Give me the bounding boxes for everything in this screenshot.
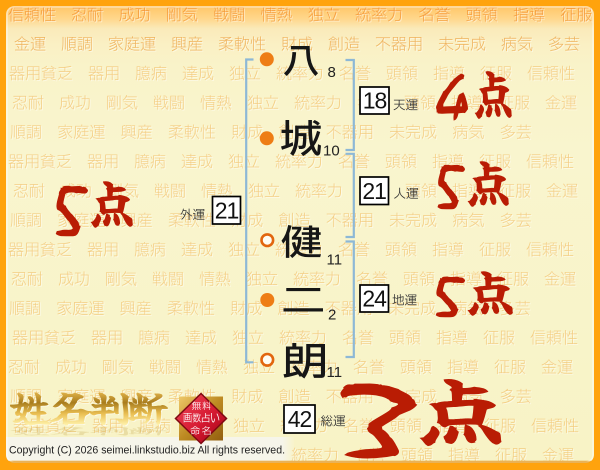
svg-text:21: 21	[215, 197, 239, 223]
svg-text:Copyright (C) 2026 seimei.link: Copyright (C) 2026 seimei.linkstudio.biz…	[9, 445, 285, 457]
svg-text:11: 11	[327, 252, 343, 269]
svg-text:2: 2	[328, 307, 336, 324]
svg-text:8: 8	[328, 64, 336, 81]
svg-text:24: 24	[362, 286, 387, 312]
svg-text:18: 18	[363, 88, 387, 114]
svg-text:11: 11	[327, 364, 343, 381]
svg-text:10: 10	[323, 143, 340, 160]
svg-text:21: 21	[362, 178, 386, 204]
svg-text:42: 42	[288, 406, 312, 432]
